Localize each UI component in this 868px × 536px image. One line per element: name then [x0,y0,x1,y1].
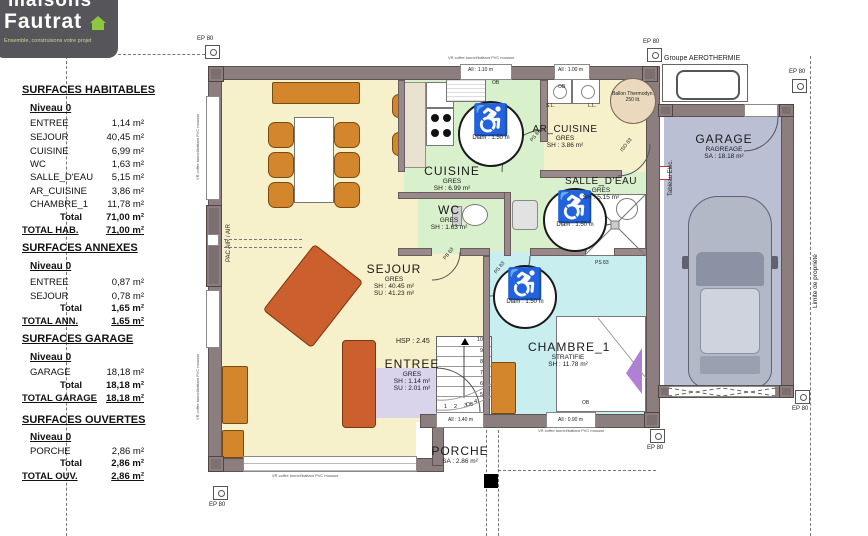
total-value: 71,00 m² [90,212,144,223]
shutter-note: VR coffre tunnel/battant PVC mousse [272,474,338,478]
grand-label: TOTAL OUV. [22,471,90,482]
property-line-top [118,54,210,55]
chair [268,122,294,148]
kitchen-counter [404,82,426,168]
grand-label: TOTAL GARAGE [22,393,97,404]
chair [268,182,294,208]
accessibility-circle-chambre: ♿ Diam : 1.50 m [493,265,557,329]
window-type-label: OB [492,81,499,87]
diameter-label: Diam : 1.50 m [495,299,555,305]
stair-number: 2 [454,404,457,410]
row-label: PORCHE [30,446,90,457]
window-type-label: OB [466,403,473,409]
ep80-label: EP 80 [647,445,663,452]
interior-wall [398,248,432,256]
tv-cabinet [222,366,248,424]
pac-outlet [207,234,219,246]
row-label: SEJOUR [30,291,90,302]
cabinet [222,430,244,458]
total-label: Total [30,303,90,314]
stove [426,108,454,146]
accessibility-circle-cuisine: ♿ Diam : 1.50 m [458,101,524,167]
interior-wall [483,256,490,418]
window-dim: All : 0.90 m [558,418,583,424]
stair-number: 4 [474,399,477,405]
row-label: ENTREE [30,277,90,288]
wheelchair-icon: ♿ [460,103,522,139]
row-label: SEJOUR [30,132,90,143]
row-label: WC [30,159,90,170]
window-dim: All : 1.00 m [558,68,583,74]
row-value: 0,78 m² [90,291,144,302]
room-label-salle-deau: SALLE_D'EAU GRES SH : 5.15 m² [556,176,646,201]
ep80-label: EP 80 [197,36,213,43]
ep80-marker [650,429,665,443]
total-value: 18,18 m² [90,380,144,391]
brand-name-bottom: Fautrat [4,10,82,34]
ep80-marker [792,79,807,93]
chair [334,182,360,208]
pac-wall-unit [206,205,222,287]
ep80-marker [213,486,228,500]
grand-value: 71,00 m² [90,225,144,236]
room-label-ar-cuisine: AR_CUISINE GRES SH : 3.86 m² [525,124,605,149]
chair [334,152,360,178]
terrace-boundary [498,470,656,471]
table-row: SEJOUR0,78 m² [30,291,144,302]
stair-direction-arrow [461,338,469,345]
row-value: 0,87 m² [90,277,144,288]
row-value: 1,63 m² [90,159,144,170]
aerothermie-label: Groupe AEROTHERMIE [664,55,740,63]
table-grand-row: TOTAL ANN.1,65 m² [22,316,144,327]
chair [334,122,360,148]
chair [268,152,294,178]
row-value: 5,15 m² [93,172,144,183]
room-label-cuisine: CUISINE GRES SH : 6.99 m² [420,164,484,192]
exterior-wall-north [208,66,658,80]
total-value: 1,65 m² [90,303,144,314]
section-title: SURFACES OUVERTES [22,414,162,426]
room-label-sejour: SEJOUR GRES SH : 40.45 m² SU : 41.23 m² [362,262,426,297]
grand-value: 1,65 m² [90,316,144,327]
corner-post [644,412,660,428]
window-type-label: OB [558,85,565,91]
pac-label: PAC AIR / AIR [226,224,233,262]
row-label: CUISINE [30,146,90,157]
garage-service-door [744,104,778,117]
sofa [342,340,376,428]
brand-tagline: Ensemble, construisons votre projet [4,38,91,44]
row-value: 2,86 m² [90,446,144,457]
shutter-note: VR coffre tunnel/battant PVC mousse [448,56,514,60]
row-label: SALLE_D'EAU [30,172,93,183]
total-value: 2,86 m² [90,458,144,469]
interior-wall [398,80,405,172]
table-grand-row: TOTAL OUV.2,86 m² [22,471,144,482]
corner-post [208,456,224,472]
row-value: 18,18 m² [90,367,144,378]
ep80-marker [795,390,810,404]
window-type-label: OB [582,401,589,407]
house-icon [90,16,106,30]
section-level: Niveau 0 [30,103,71,114]
pac-dashed-line [224,247,302,248]
garage-wall-east [781,104,794,398]
row-value: 6,99 m² [90,146,144,157]
bay-window-south [243,456,417,472]
table-row: SALLE_D'EAU5,15 m² [30,172,144,183]
window-west-1 [206,96,220,200]
aerothermie-unit-box [662,64,748,102]
table-row: GARAGE18,18 m² [30,367,144,378]
interior-wall [398,192,510,199]
table-total-row: Total18,18 m² [30,380,144,391]
row-value: 40,45 m² [90,132,144,143]
corner-post [208,66,224,82]
total-label: Total [30,380,90,391]
row-label: CHAMBRE_1 [30,199,90,210]
corner-post [642,66,658,82]
table-row: PORCHE2,86 m² [30,446,144,457]
section-title: SURFACES HABITABLES [22,84,162,96]
row-value: 11,78 m² [90,199,144,210]
pac-dashed-line [224,239,302,240]
water-heater-capacity: 250 lit. [611,98,655,104]
ep80-label: EP 80 [643,39,659,46]
window-west-2 [206,290,220,348]
stair-number: 1 [444,404,447,410]
wheelchair-icon: ♿ [495,267,555,303]
dryer [572,78,600,104]
row-label: ENTREE [30,118,90,129]
floor-plan-canvas: Limite de propriété maisons Fautrat Ense… [0,0,868,536]
diameter-label: Diam : 1.50 m [545,222,605,228]
diameter-label: Diam : 1.50 m [460,135,522,141]
appliance-label-ll: L.L. [588,104,596,110]
wardrobe [490,362,516,414]
section-level: Niveau 0 [30,261,71,272]
total-label: Total [30,458,90,469]
section-title: SURFACES ANNEXES [22,242,162,254]
property-line-right [810,56,811,536]
shutter-note: VR coffre tunnel/battant PVC mousse [196,114,200,180]
grand-label: TOTAL HAB. [22,225,90,236]
table-row: CUISINE6,99 m² [30,146,144,157]
appliance-label-sl: S.L. [546,104,555,110]
washbasin [512,200,538,230]
ceiling-height-label: HSP : 2.45 [396,338,430,346]
table-total-row: Total71,00 m² [30,212,144,223]
interior-wall [504,192,511,256]
sink-bowl [616,198,638,220]
window-dim: All : 1.10 m [468,68,493,74]
car [688,196,772,388]
row-label: GARAGE [30,367,90,378]
table-grand-row: TOTAL GARAGE18,18 m² [22,393,144,404]
room-label-entree: ENTREE GRES SH : 1.14 m² SU : 2.01 m² [384,357,440,392]
grand-value: 18,18 m² [97,393,144,404]
garage-door [668,386,776,397]
row-value: 3,86 m² [90,186,144,197]
ep80-label: EP 80 [209,502,225,509]
ep80-label: EP 80 [792,406,808,413]
window-dim: All : 1.40 m [448,418,473,424]
room-label-porche: PORCHE SA : 2.86 m² [428,444,492,465]
dining-table [294,117,334,203]
corner-post [658,104,673,117]
property-limit-label: Limite de propriété [812,254,819,308]
sideboard [272,82,360,104]
ep80-marker [205,45,220,59]
room-label-chambre: CHAMBRE_1 STRATIFIE SH : 11.78 m² [528,340,608,368]
exterior-wall-east [646,66,660,428]
table-grand-row: TOTAL HAB.71,00 m² [22,225,144,236]
table-total-row: Total2,86 m² [30,458,144,469]
porch-post [484,474,498,488]
table-row: CHAMBRE_111,78 m² [30,199,144,210]
table-row: AR_CUISINE3,86 m² [30,186,144,197]
total-label: Total [30,212,90,223]
corner-post [779,104,794,117]
shutter-note: VR coffre tunnel/battant PVC mousse [538,429,604,433]
table-row: WC1,63 m² [30,159,144,170]
table-total-row: Total1,65 m² [30,303,144,314]
door-label: PS 83 [595,261,609,267]
grand-label: TOTAL ANN. [22,316,90,327]
ep80-marker [647,48,662,62]
porch-boundary [498,430,499,536]
washing-machine [544,78,572,104]
ep80-label: EP 80 [789,69,805,76]
section-level: Niveau 0 [30,352,71,363]
section-title: SURFACES GARAGE [22,333,162,345]
shutter-note: VR coffre tunnel/battant PVC mousse [196,354,200,420]
interior-wall [460,248,490,256]
room-label-garage: GARAGE RAGREAGE SA : 18.18 m² [692,132,756,160]
row-label: AR_CUISINE [30,186,90,197]
room-label-wc: WC GRES SH : 1.63 m² [426,203,472,231]
brand-logo: maisons Fautrat Ensemble, construisons v… [0,0,118,58]
row-value: 1,14 m² [90,118,144,129]
corner-post [779,385,794,398]
water-heater: Ballon Thermodyn. 250 lit. [610,78,656,124]
table-row: ENTREE1,14 m² [30,118,144,129]
table-row: SEJOUR40,45 m² [30,132,144,143]
section-level: Niveau 0 [30,432,71,443]
grand-value: 2,86 m² [90,471,144,482]
electrical-panel-label: Tableau Elec. [668,160,675,196]
table-row: ENTREE0,87 m² [30,277,144,288]
